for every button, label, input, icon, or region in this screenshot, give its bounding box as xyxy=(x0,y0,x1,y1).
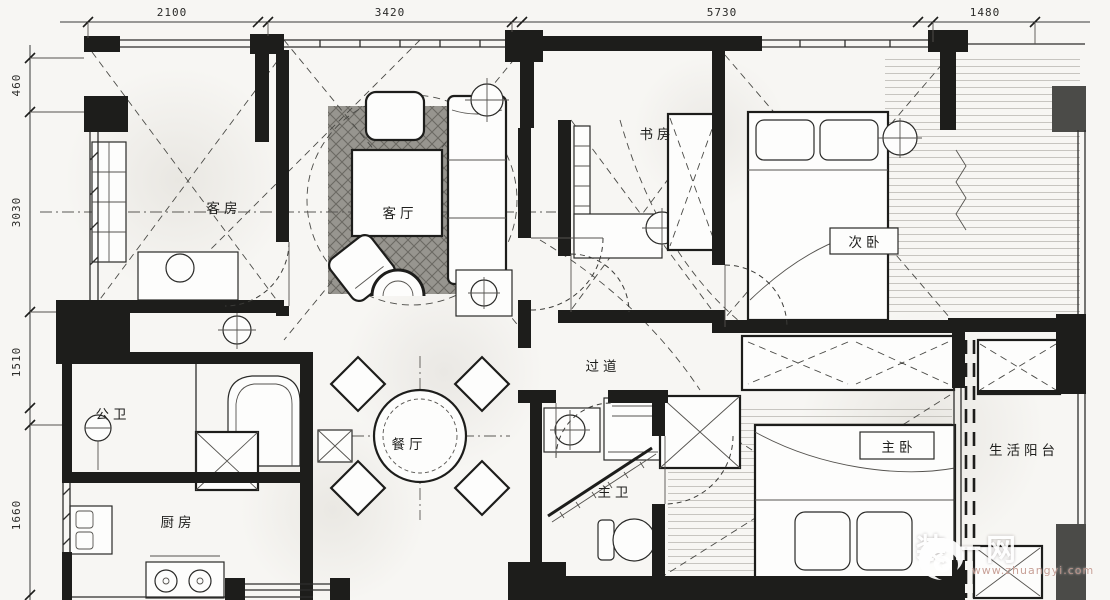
dining-chair xyxy=(455,357,509,411)
sofa xyxy=(448,96,506,284)
pillow xyxy=(795,512,850,570)
room-label-bedroom2: 次卧 xyxy=(849,235,884,251)
toilet-tank xyxy=(598,520,614,560)
coffee-table xyxy=(352,150,442,236)
dim-left-2: 3030 xyxy=(10,197,23,228)
dim-left-4: 1660 xyxy=(10,500,23,531)
room-label-living: 客厅 xyxy=(383,205,418,222)
room-label-guest: 客房 xyxy=(207,200,242,217)
dim-left-3: 1510 xyxy=(10,347,23,378)
room-label-corridor: 过道 xyxy=(586,359,621,375)
dining-chair xyxy=(331,357,385,411)
shower-glass xyxy=(548,448,652,516)
room-label-public-bath: 公卫 xyxy=(96,407,131,423)
dining-chair xyxy=(455,461,509,515)
burner xyxy=(155,570,177,592)
plan-svg: 2100 3420 5730 1480 460 3030 1510 1660 客… xyxy=(0,0,1110,600)
side-table xyxy=(366,92,424,140)
dim-left-1: 460 xyxy=(10,74,23,97)
room-label-study: 书房 xyxy=(640,127,675,143)
room-label-balcony: 生活阳台 xyxy=(989,443,1059,459)
room-label-master: 主卧 xyxy=(882,440,917,456)
room-label-dining: 餐厅 xyxy=(392,437,427,453)
master-bath-fixtures xyxy=(544,398,662,561)
room-label-kitchen: 厨房 xyxy=(161,515,196,531)
toilet xyxy=(613,519,655,561)
watermark-url: www.zhuangyi.com xyxy=(968,564,1098,577)
dim-top-3: 5730 xyxy=(707,6,738,19)
pillow xyxy=(820,120,878,160)
floor-plan: 2100 3420 5730 1480 460 3030 1510 1660 客… xyxy=(0,0,1110,600)
burner xyxy=(189,570,211,592)
dim-top-2: 3420 xyxy=(375,6,406,19)
washing-machine xyxy=(978,340,1060,394)
pillow xyxy=(857,512,912,570)
dim-top-4: 1480 xyxy=(970,6,1001,19)
zhuangyi-logo-icon xyxy=(916,536,966,582)
dim-top-1: 2100 xyxy=(157,6,188,19)
dining-chair xyxy=(331,461,385,515)
dining-table xyxy=(374,390,466,482)
guest-chair xyxy=(166,254,194,282)
pillow xyxy=(756,120,814,160)
room-label-master-bath: 主卫 xyxy=(598,485,633,501)
watermark: 装一网 www.zhuangyi.com xyxy=(916,536,1098,600)
master-wardrobe xyxy=(742,336,954,390)
